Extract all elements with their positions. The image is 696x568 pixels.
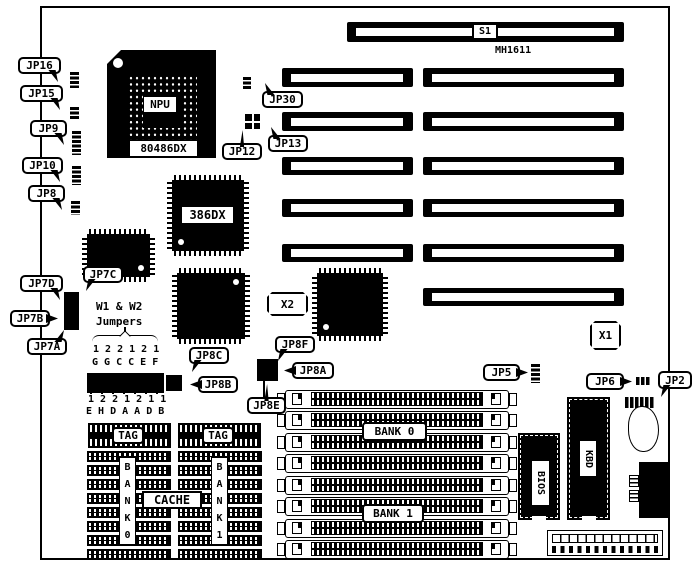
simm-socket-5-tab-left <box>277 479 285 492</box>
tag-kbd-label: KBD <box>583 449 593 467</box>
chip-qfp-center-body <box>177 273 245 339</box>
callout-jp8e: JP8E <box>247 397 286 414</box>
jp8e-pointer-line <box>263 380 265 398</box>
cache-chips-bank1-row8 <box>178 549 262 560</box>
callout-jp6: JP6 <box>586 373 624 390</box>
power-connector-block-plug2 <box>629 490 639 502</box>
crystal-x1: X1 <box>590 321 621 350</box>
jumper-jp12-jp13-gap-h <box>245 121 260 123</box>
jumper-jp8-pins <box>71 201 80 215</box>
slot-isa-right-4-contact-stripe <box>432 204 614 212</box>
simm-socket-1-contacts <box>311 392 483 406</box>
power-pin-header-pins <box>552 546 658 553</box>
text-top-pin-letters: G G C C E F <box>92 358 158 368</box>
tag-386dx: 386DX <box>182 207 233 223</box>
slot-isa-left-2 <box>282 112 413 131</box>
chip-kbd-notch <box>582 516 596 520</box>
slot-isa-left-5 <box>282 244 413 262</box>
simm-socket-2-clip-right-latch <box>492 415 495 420</box>
callout-jp7d: JP7D <box>20 275 63 292</box>
simm-socket-8-clip-left <box>292 543 302 555</box>
jumper-block-jp7 <box>64 292 79 330</box>
chip-qfp-upper-left-pins-right <box>150 236 155 275</box>
simm-socket-7-contacts-row2 <box>312 529 482 534</box>
jumpers-brace <box>92 332 158 343</box>
chip-qfp-right-body <box>317 273 383 336</box>
power-pin-header <box>547 530 663 556</box>
tag-bank0: BANK 0 <box>362 422 427 441</box>
chip-qfp-right <box>312 268 388 341</box>
power-connector-block-plug1 <box>629 475 639 487</box>
simm-socket-4-clip-left <box>292 457 302 469</box>
cache-chips-bank1-row8-pins-top <box>180 551 260 554</box>
callout-jp8b: JP8B <box>198 376 238 393</box>
simm-socket-4-clip-left-latch <box>298 458 301 463</box>
tag-bank1-vertical: B A N K 1 <box>211 457 228 545</box>
simm-socket-1-clip-right <box>491 393 501 405</box>
simm-socket-3-contacts-row2 <box>312 443 482 448</box>
simm-socket-2-clip-left-latch <box>298 415 301 420</box>
tag-tag-left: TAG <box>112 427 144 444</box>
jumper-jp10-pins <box>72 166 81 185</box>
simm-socket-6-clip-right <box>491 500 501 512</box>
cache-chips-bank0-row1-pins-top <box>89 453 169 456</box>
jumper-jp9-pins <box>72 131 81 155</box>
simm-socket-8-frame <box>285 540 509 559</box>
callout-jp16: JP16 <box>18 57 61 74</box>
simm-socket-5-clip-right-latch <box>492 480 495 485</box>
simm-socket-6-clip-left <box>292 500 302 512</box>
tag-bios-label: BIOS <box>536 471 546 495</box>
simm-socket-6-tab-left <box>277 500 285 513</box>
slot-isa-left-2-contact-stripe <box>291 118 403 126</box>
chip-npu-socket-pin1-dot <box>113 58 123 68</box>
motherboard-diagram: NPU80486DX386DXW1 & W2Jumpers1 2 2 1 2 1… <box>0 0 696 568</box>
chip-qfp-upper-left-pin1-dot <box>138 265 144 271</box>
simm-socket-7-contacts <box>311 521 483 535</box>
callout-jp2: JP2 <box>658 371 692 389</box>
tag-npu: NPU <box>144 97 176 112</box>
slot-isa-right-5-contact-stripe <box>432 249 614 257</box>
jumper-block-jp8aef <box>257 359 278 381</box>
text-top-pin-numbers: 1 2 2 1 2 1 <box>93 345 159 355</box>
jumper-jp15-pins <box>70 107 79 120</box>
simm-socket-8-contacts-row1 <box>312 543 482 548</box>
text-mh1611: MH1611 <box>495 46 531 56</box>
simm-socket-1-contacts-row2 <box>312 400 482 405</box>
chip-qfp-center-pins-bottom <box>179 339 243 344</box>
chip-386dx-pin1-dot <box>178 239 184 245</box>
simm-socket-2-clip-right <box>491 414 501 426</box>
simm-socket-7-clip-right-latch <box>492 523 495 528</box>
callout-jp10: JP10 <box>22 157 63 174</box>
simm-socket-6-tab-right <box>509 500 517 513</box>
simm-socket-6-clip-left-latch <box>298 501 301 506</box>
slot-isa-right-3-contact-stripe <box>432 162 614 170</box>
simm-socket-2-tab-left <box>277 414 285 427</box>
jumper-jp5-pins <box>531 364 540 383</box>
text-bottom-pin-letters: E H D A A D B <box>86 407 164 417</box>
simm-socket-1-frame <box>285 390 509 409</box>
slot-isa-left-1-contact-stripe <box>291 74 403 82</box>
simm-socket-4-clip-right-latch <box>492 458 495 463</box>
slot-isa-right-6 <box>423 288 624 306</box>
callout-jp15: JP15 <box>20 85 63 102</box>
simm-socket-3-clip-left <box>292 436 302 448</box>
simm-socket-5-clip-left-latch <box>298 480 301 485</box>
simm-socket-4-contacts-row2 <box>312 464 482 469</box>
simm-socket-5-contacts <box>311 478 483 492</box>
simm-socket-8-tab-left <box>277 543 285 556</box>
simm-socket-3-clip-left-latch <box>298 437 301 442</box>
tag-tag-right: TAG <box>202 427 234 444</box>
simm-socket-7-tab-right <box>509 522 517 535</box>
chip-qfp-center-pin1-dot <box>233 279 239 285</box>
jumper-block-jp8bc <box>166 375 182 391</box>
power-connector-block <box>639 462 670 518</box>
chip-qfp-center <box>172 268 250 344</box>
simm-socket-5-contacts-row1 <box>312 479 482 484</box>
tag-80486dx: 80486DX <box>130 141 197 156</box>
callout-jp5: JP5 <box>483 364 520 381</box>
simm-socket-7-clip-left <box>292 522 302 534</box>
chip-qfp-right-pins-bottom <box>319 336 381 341</box>
tag-bank0-vertical: B A N K 0 <box>119 457 136 545</box>
simm-socket-4-contacts <box>311 456 483 470</box>
slot-isa-right-4 <box>423 199 624 217</box>
jumper-jp30-pins <box>243 77 251 90</box>
cache-chips-bank0-row8-pins-top <box>89 551 169 554</box>
slot-isa-right-5 <box>423 244 624 262</box>
callout-jp7b: JP7B <box>10 310 50 327</box>
slot-isa-right-1-contact-stripe <box>432 74 614 82</box>
tag-s1: S1 <box>472 23 498 40</box>
simm-socket-7-clip-right <box>491 522 501 534</box>
callout-jp13: JP13 <box>268 135 308 152</box>
simm-socket-1-clip-left <box>292 393 302 405</box>
simm-socket-4-clip-right <box>491 457 501 469</box>
simm-socket-7-clip-left-latch <box>298 523 301 528</box>
text-w1-w2: W1 & W2 <box>96 301 142 312</box>
callout-jp8c: JP8C <box>189 347 229 364</box>
simm-socket-8-tab-right <box>509 543 517 556</box>
crystal-x2: X2 <box>267 292 308 316</box>
chip-bios-notch <box>532 516 546 520</box>
cache-chips-bank0-row8-pins-bottom <box>89 555 169 558</box>
simm-socket-6-clip-right-latch <box>492 501 495 506</box>
callout-jp12: JP12 <box>222 143 262 160</box>
simm-socket-4-contacts-row1 <box>312 457 482 462</box>
cache-chips-bank1-row1-pins-top <box>180 453 260 456</box>
text-jumpers: Jumpers <box>96 316 142 327</box>
simm-socket-5-clip-right <box>491 479 501 491</box>
simm-socket-4-tab-right <box>509 457 517 470</box>
simm-socket-5 <box>277 476 517 495</box>
slot-isa-left-4-contact-stripe <box>291 204 403 212</box>
cache-chips-bank0-row8 <box>87 549 171 560</box>
simm-socket-7-tab-left <box>277 522 285 535</box>
slot-isa-right-6-contact-stripe <box>432 293 614 301</box>
slot-isa-left-3-contact-stripe <box>291 162 403 170</box>
simm-socket-3-clip-right <box>491 436 501 448</box>
simm-socket-5-clip-left <box>292 479 302 491</box>
chip-386dx-pins-right <box>244 182 249 249</box>
jumper-jp6-pins <box>636 377 651 385</box>
chip-qfp-right-pin1-dot <box>323 324 329 330</box>
simm-socket-8-clip-right <box>491 543 501 555</box>
simm-socket-3-tab-right <box>509 436 517 449</box>
simm-socket-8-contacts <box>311 542 483 556</box>
simm-socket-4-frame <box>285 454 509 473</box>
simm-socket-4-tab-left <box>277 457 285 470</box>
simm-socket-1-clip-left-latch <box>298 394 301 399</box>
jumper-jp16-pins <box>70 72 79 88</box>
chip-386dx-pins-bottom <box>174 251 242 256</box>
cache-chips-bank1-row8-pins-bottom <box>180 555 260 558</box>
simm-socket-8-clip-right-latch <box>492 544 495 549</box>
simm-socket-1-contacts-row1 <box>312 393 482 398</box>
jumper-jp12-jp13 <box>245 114 260 129</box>
simm-socket-2-contacts-row1 <box>312 414 482 419</box>
slot-isa-left-4 <box>282 199 413 217</box>
callout-jp8: JP8 <box>28 185 65 202</box>
simm-socket-5-contacts-row2 <box>312 486 482 491</box>
slot-isa-right-3 <box>423 157 624 175</box>
slot-isa-right-1 <box>423 68 624 87</box>
simm-socket-3-tab-left <box>277 436 285 449</box>
tag-kbd: KBD <box>580 441 596 476</box>
simm-socket-2-tab-right <box>509 414 517 427</box>
slot-isa-left-1 <box>282 68 413 87</box>
simm-socket-3-clip-right-latch <box>492 437 495 442</box>
power-pin-header-sockets <box>552 534 658 543</box>
simm-socket-5-frame <box>285 476 509 495</box>
text-bottom-pin-numbers: 1 2 2 1 2 1 1 <box>88 395 166 405</box>
callout-jp7c: JP7C <box>83 266 123 283</box>
callout-jp7a: JP7A <box>27 338 67 355</box>
callout-jp30: JP30 <box>262 91 303 108</box>
slot-isa-right-2-contact-stripe <box>432 118 614 126</box>
chip-qfp-right-pins-right <box>383 275 388 334</box>
keyboard-din-connector <box>628 406 659 452</box>
simm-socket-1 <box>277 390 517 409</box>
jumpers-brace-right <box>129 335 158 342</box>
simm-socket-8 <box>277 540 517 559</box>
slot-isa-left-3 <box>282 157 413 175</box>
simm-socket-1-tab-right <box>509 393 517 406</box>
simm-socket-8-clip-left-latch <box>298 544 301 549</box>
simm-socket-2-clip-left <box>292 414 302 426</box>
simm-socket-1-clip-right-latch <box>492 394 495 399</box>
callout-jp9: JP9 <box>30 120 67 137</box>
simm-socket-8-contacts-row2 <box>312 550 482 555</box>
simm-socket-5-tab-right <box>509 479 517 492</box>
jumpers-brace-left <box>92 335 121 342</box>
tag-cache: CACHE <box>142 491 202 509</box>
tag-bank1: BANK 1 <box>362 504 424 523</box>
chip-qfp-center-pins-right <box>245 275 250 337</box>
callout-jp8f: JP8F <box>275 336 315 353</box>
callout-jp8a: JP8A <box>292 362 334 379</box>
simm-socket-4 <box>277 454 517 473</box>
tag-bios: BIOS <box>532 461 549 505</box>
slot-isa-right-2 <box>423 112 624 131</box>
slot-isa-left-5-contact-stripe <box>291 249 403 257</box>
